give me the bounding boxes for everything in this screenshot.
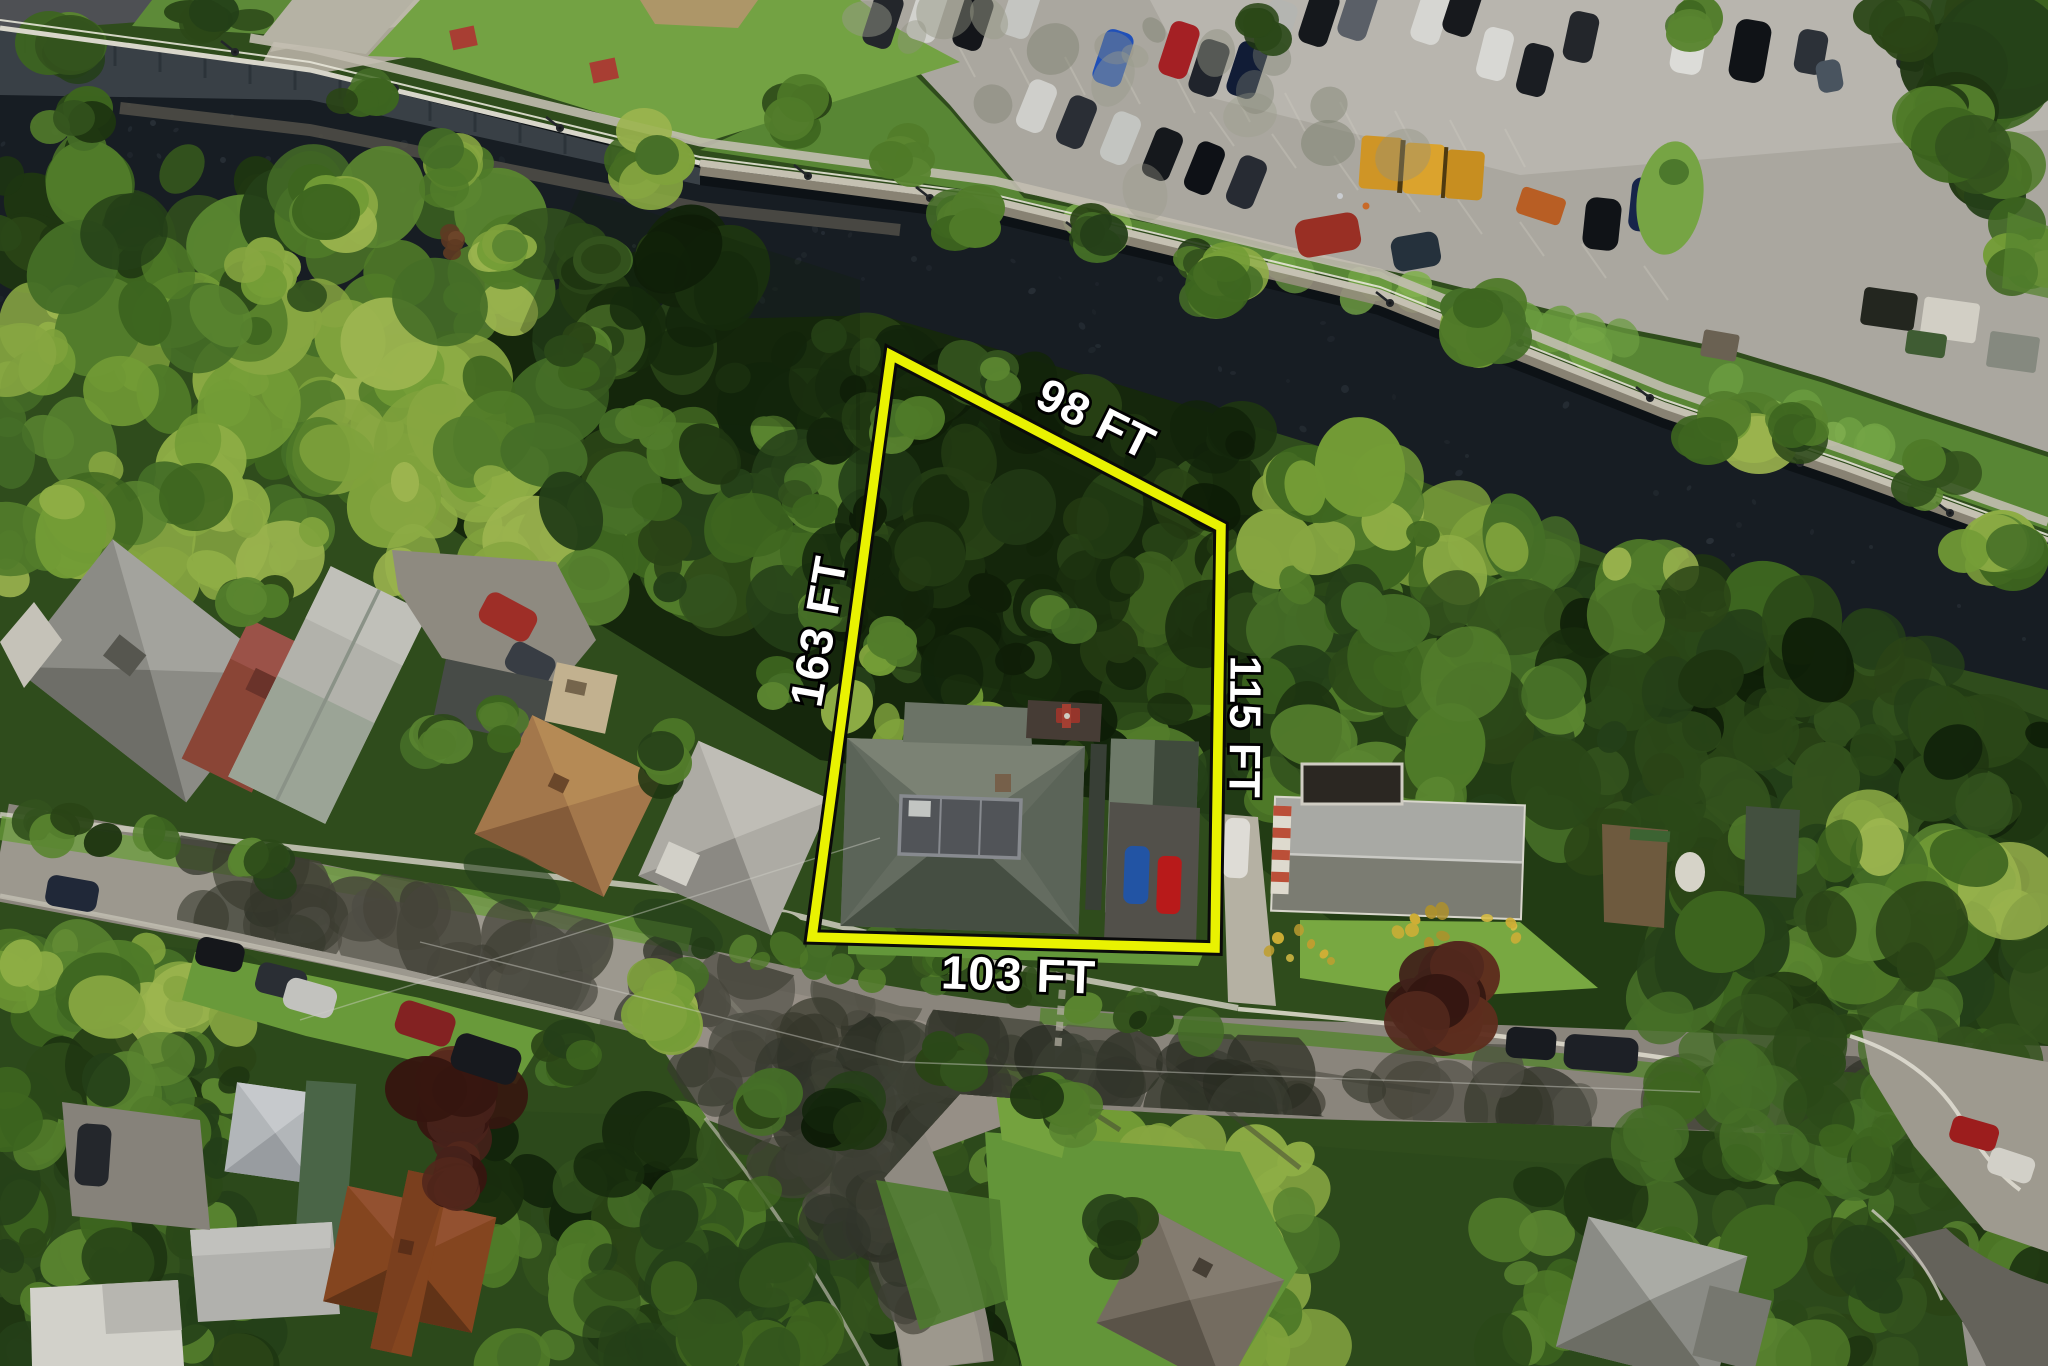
svg-text:103 FT: 103 FT bbox=[940, 945, 1097, 1003]
svg-text:115 FT: 115 FT bbox=[1219, 655, 1269, 798]
